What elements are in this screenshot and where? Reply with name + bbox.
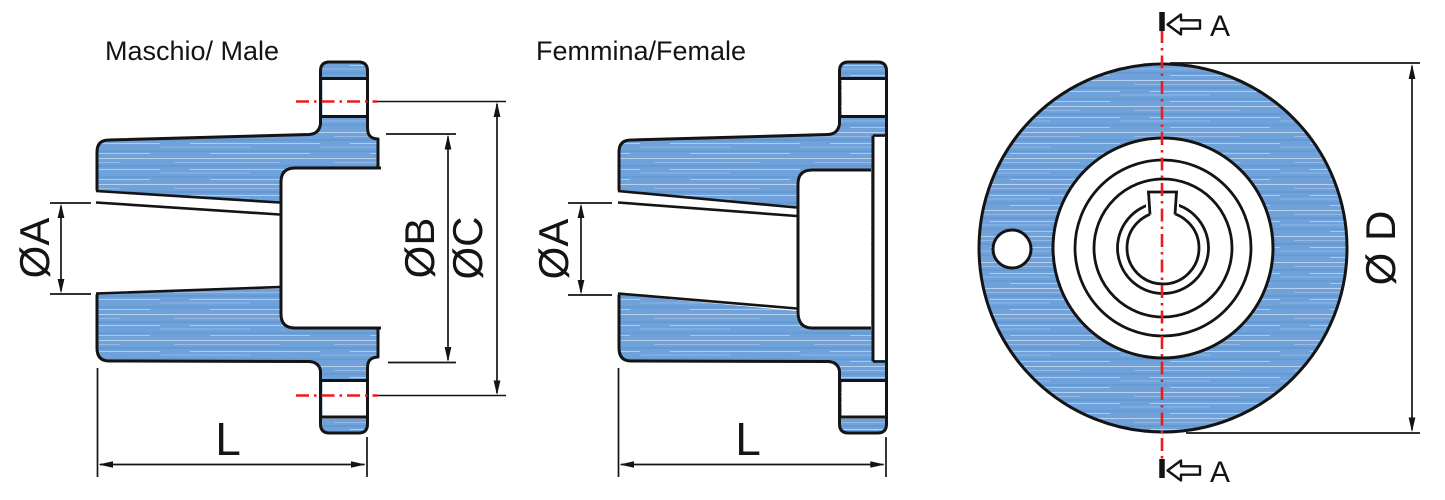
- male-taper-bore: [95, 191, 280, 295]
- section-label-top: A: [1210, 10, 1230, 43]
- flange-inner-circle: [1053, 138, 1273, 358]
- male-bolt-hole-bottom: [321, 381, 368, 418]
- flange-pin-hole: [993, 230, 1031, 268]
- section-marker-top: A: [1162, 10, 1230, 43]
- female-section-view: Femmina/Female ØA: [530, 36, 886, 477]
- male-section-view: Maschio/ Male ØA ØB: [11, 36, 506, 477]
- male-dim-a-label: ØA: [11, 218, 58, 279]
- male-flange-cavity: [281, 168, 381, 328]
- female-socket-cavity: [797, 169, 872, 330]
- front-flange-view: A A Ø D: [979, 10, 1420, 489]
- male-view-title: Maschio/ Male: [105, 36, 279, 66]
- female-bolt-hole-top: [840, 79, 887, 117]
- male-dimension-a: ØA: [11, 203, 91, 294]
- technical-drawing-page: Maschio/ Male ØA ØB: [0, 0, 1445, 500]
- female-view-title: Femmina/Female: [536, 36, 746, 66]
- male-bolt-hole-top: [321, 79, 368, 117]
- section-arrow-bottom-icon: [1168, 461, 1201, 481]
- female-dim-l-label: L: [735, 413, 761, 465]
- front-dim-d-label: Ø D: [1357, 211, 1404, 286]
- drawing-canvas: Maschio/ Male ØA ØB: [0, 0, 1445, 500]
- male-dim-l-label: L: [215, 413, 241, 465]
- female-bolt-hole-bottom: [840, 381, 887, 418]
- female-dim-a-label: ØA: [530, 219, 577, 280]
- female-flange-recess: [873, 136, 886, 362]
- male-dim-c-label: ØC: [444, 217, 491, 280]
- section-label-bottom: A: [1210, 456, 1230, 489]
- section-arrow-top-icon: [1168, 15, 1201, 35]
- female-dimension-a: ØA: [530, 203, 612, 295]
- male-dim-b-label: ØB: [396, 218, 443, 279]
- male-dimension-c: ØC: [444, 102, 500, 395]
- section-marker-bottom: A: [1162, 456, 1230, 489]
